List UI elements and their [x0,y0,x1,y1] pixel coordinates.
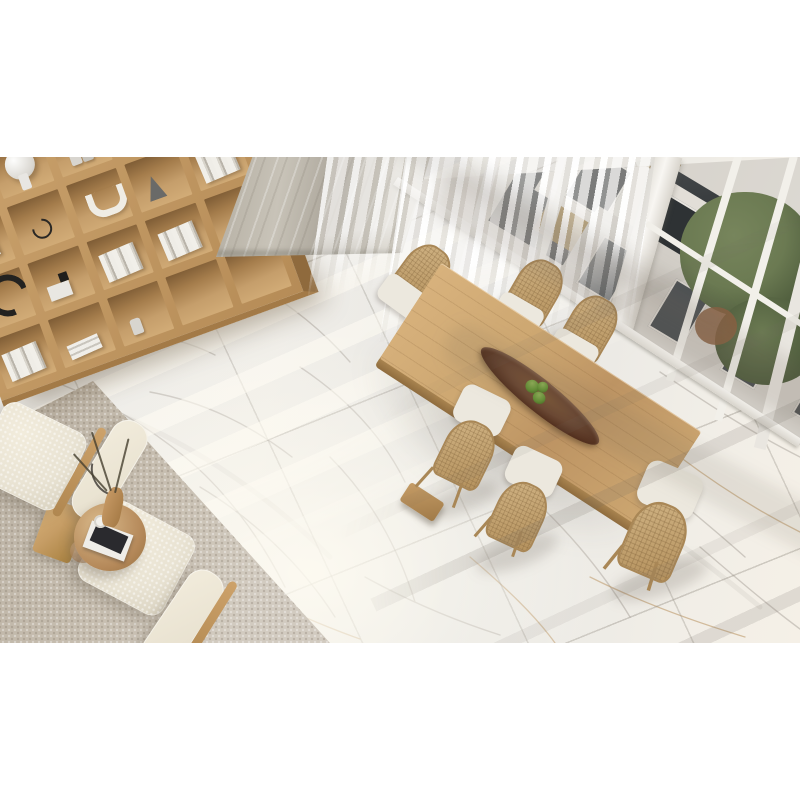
shelf-cell [66,168,134,234]
book-row [195,157,241,184]
ceramic-jar [67,157,83,167]
shelf-cell [48,302,116,368]
ceramic-jar [128,317,144,336]
bottom-white-margin [0,643,800,800]
book-row [99,242,145,283]
cone-vase [142,173,167,202]
u-shaped-vase [84,183,131,222]
book-row [157,220,203,261]
white-box [47,279,74,301]
shelf-cell [107,281,175,347]
magazine-stack [0,238,1,268]
shelf-cell [86,224,154,290]
shelf-cell [28,246,96,312]
shelf-cell [0,267,37,333]
interior-photo [0,157,800,643]
shelf-cell [145,203,213,269]
top-white-margin [0,0,800,157]
stacked-books [66,333,102,360]
shelf-cell [124,157,192,213]
arc-sculpture [0,269,35,323]
wire-decor-object [28,214,56,242]
shelf-cell [7,189,75,255]
shelf-cell [165,259,233,325]
